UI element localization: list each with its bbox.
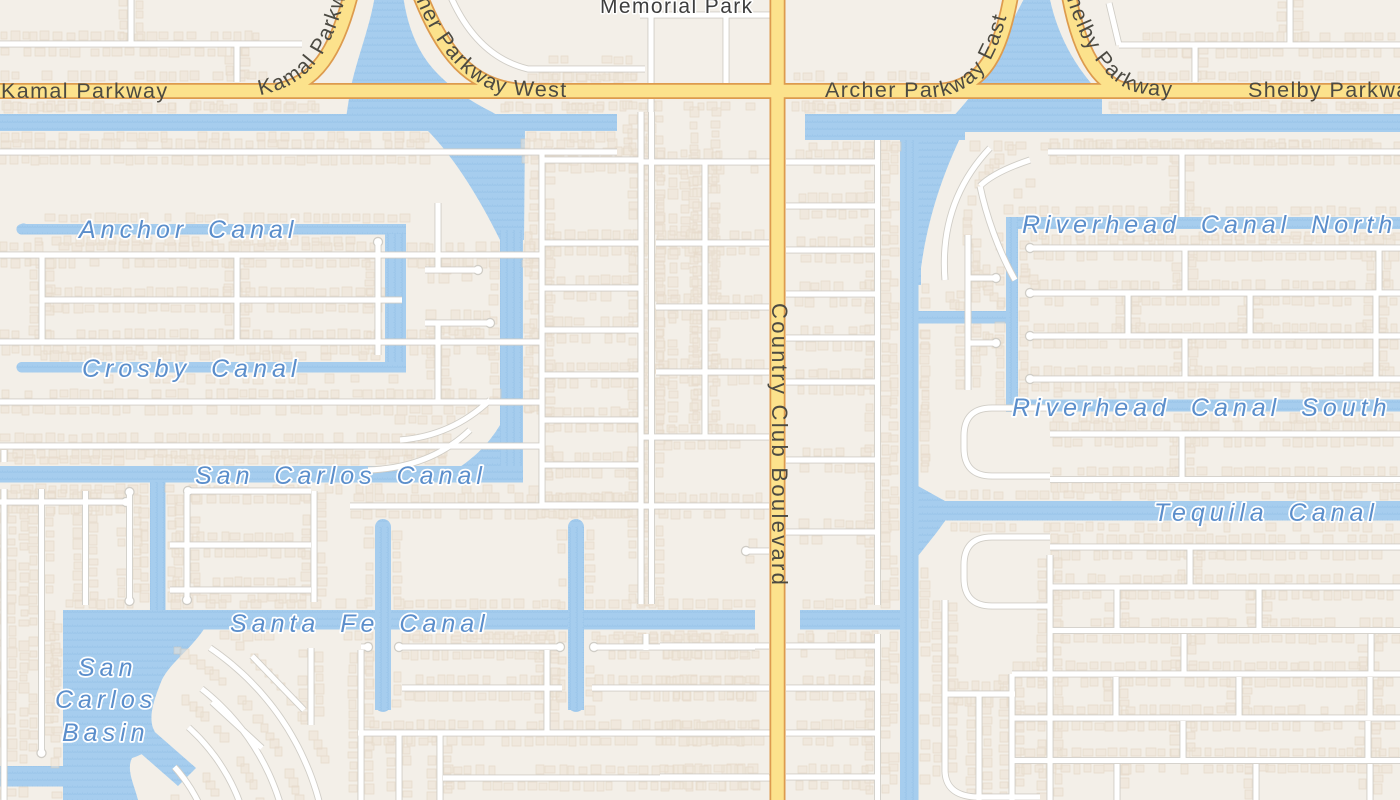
svg-text:Riverhead Canal South: Riverhead Canal South (1012, 394, 1392, 422)
svg-text:Anchor Canal: Anchor Canal (77, 216, 298, 244)
svg-text:Riverhead Canal North: Riverhead Canal North (1022, 211, 1397, 239)
svg-text:Shelby Parkway: Shelby Parkway (1248, 78, 1400, 102)
svg-text:Tequila Canal: Tequila Canal (1154, 499, 1379, 527)
svg-text:Santa Fe Canal: Santa Fe Canal (230, 610, 490, 638)
svg-text:Memorial Park: Memorial Park (600, 0, 754, 18)
svg-text:Country Club Boulevard: Country Club Boulevard (767, 303, 792, 587)
svg-text:Carlos: Carlos (55, 686, 157, 714)
svg-text:Basin: Basin (62, 719, 150, 747)
svg-text:San: San (78, 654, 137, 682)
svg-text:San Carlos Canal: San Carlos Canal (195, 462, 487, 490)
svg-text:Kamal Parkway: Kamal Parkway (1, 79, 169, 103)
svg-text:Crosby Canal: Crosby Canal (82, 355, 301, 383)
